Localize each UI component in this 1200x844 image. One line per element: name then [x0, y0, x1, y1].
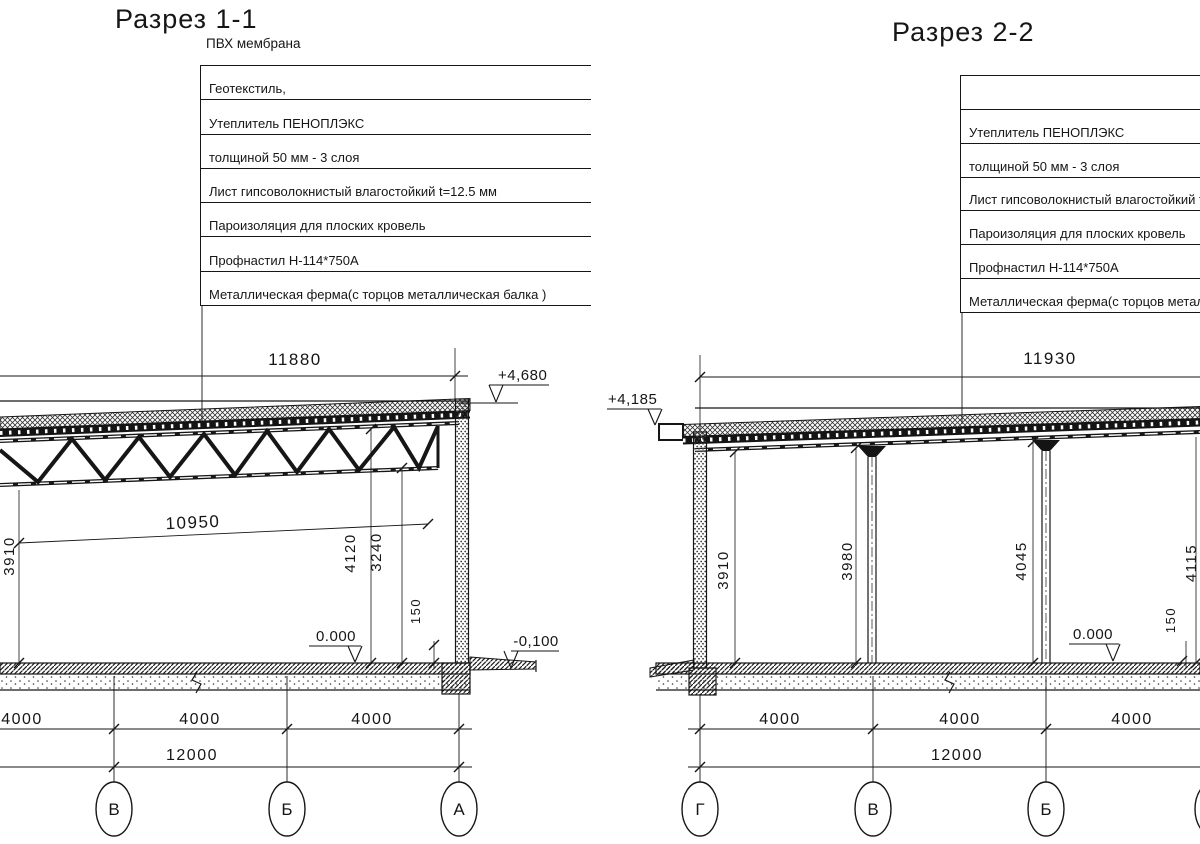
elev-roof-2: +4,185 [608, 391, 657, 408]
elev-floor-2: 0.000 [1069, 626, 1117, 643]
dim-height-truss-top-1: 4120 [343, 523, 359, 583]
dim-plinth-1: 150 [408, 581, 424, 641]
drawing-sheet: Разрез 1-1 Разрез 2-2 ПВХ мембрана Геоте… [0, 0, 1200, 844]
callout-row: Лист гипсоволокнистый влагостойкий t=12.… [201, 169, 591, 203]
dim-span-top-1: 11880 [265, 350, 325, 370]
section1-wall [456, 399, 469, 663]
callout-row: Профнастил Н-114*750А [201, 237, 591, 271]
section1-title: Разрез 1-1 [115, 4, 258, 35]
callout-row [961, 76, 1200, 110]
elev-floor-1: 0.000 [312, 628, 360, 645]
dim-bay: 4000 [0, 711, 52, 729]
axis-bubble-label: В [858, 800, 888, 820]
elev-roof-1: +4,680 [498, 367, 547, 384]
callout-row: Металлическая ферма(с торцов металлическ… [961, 279, 1200, 313]
dim-height-2: 4045 [1014, 531, 1030, 591]
section1-callout-table: Геотекстиль, Утеплитель ПЕНОПЛЭКС толщин… [200, 65, 591, 306]
callout-row: Геотекстиль, [201, 66, 591, 100]
callout-row: Профнастил Н-114*750А [961, 245, 1200, 279]
callout-row: толщиной 50 мм - 3 слоя [961, 144, 1200, 178]
dim-span-top-2: 11930 [1020, 349, 1080, 369]
section2-title: Разрез 2-2 [892, 17, 1035, 48]
callout-row: толщиной 50 мм - 3 слоя [201, 135, 591, 169]
callout-row: Металлическая ферма(с торцов металлическ… [201, 272, 591, 306]
callout-row: Пароизоляция для плоских кровель [201, 203, 591, 237]
callout-row: Утеплитель ПЕНОПЛЭКС [961, 110, 1200, 144]
axis-bubble-label: Б [272, 800, 302, 820]
dim-bay: 4000 [342, 711, 402, 729]
axis-bubble-label: Б [1031, 800, 1061, 820]
dim-height-truss-bottom-1: 3240 [369, 522, 385, 582]
dim-height-left-1: 3910 [2, 526, 18, 586]
callout-row: Лист гипсоволокнистый влагостойкий t=12.… [961, 178, 1200, 212]
elev-ground-1: -0,100 [512, 633, 560, 650]
dim-height-2: 3980 [840, 531, 856, 591]
section1-axes [0, 676, 477, 836]
dim-bay: 4000 [170, 711, 230, 729]
axis-bubble-label: Г [685, 800, 715, 820]
section1-floor [0, 657, 536, 694]
dim-span-inner-1: 10950 [163, 512, 224, 535]
dim-total-2: 12000 [927, 747, 987, 765]
section1-callout-note: ПВХ мембрана [206, 36, 301, 51]
dim-height-2: 3910 [716, 540, 732, 600]
dim-height-2: 4115 [1184, 533, 1200, 593]
dim-total-1: 12000 [162, 747, 222, 765]
dim-bay: 4000 [1102, 711, 1162, 729]
axis-bubble-label: В [99, 800, 129, 820]
section2-roof-deck [659, 407, 1200, 451]
dim-bay: 4000 [930, 711, 990, 729]
dim-plinth-2: 150 [1163, 590, 1179, 650]
section2-callout-table: Утеплитель ПЕНОПЛЭКС толщиной 50 мм - 3 … [960, 75, 1200, 313]
callout-row: Утеплитель ПЕНОПЛЭКС [201, 100, 591, 134]
dim-bay: 4000 [750, 711, 810, 729]
callout-row: Пароизоляция для плоских кровель [961, 211, 1200, 245]
axis-bubble-label: А [444, 800, 474, 820]
section2-wall [689, 432, 716, 695]
